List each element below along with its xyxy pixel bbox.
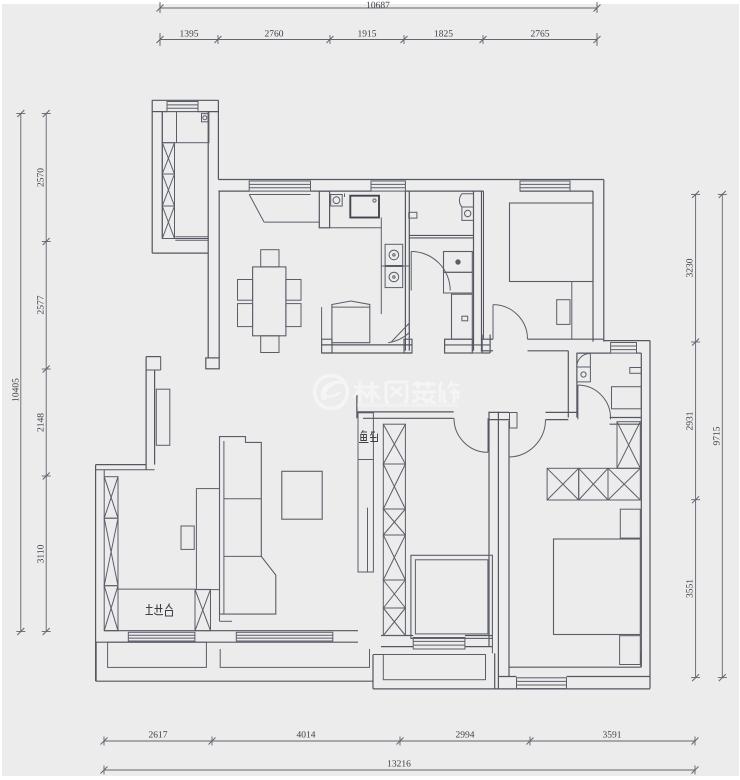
svg-text:2577: 2577 xyxy=(37,295,47,314)
svg-text:3551: 3551 xyxy=(686,579,696,598)
svg-text:10405: 10405 xyxy=(12,378,22,402)
svg-text:1825: 1825 xyxy=(434,30,453,40)
svg-text:3591: 3591 xyxy=(603,731,622,741)
svg-text:2765: 2765 xyxy=(531,30,550,40)
svg-text:3110: 3110 xyxy=(37,544,47,563)
svg-text:2760: 2760 xyxy=(265,30,284,40)
svg-text:1395: 1395 xyxy=(180,30,199,40)
svg-text:4014: 4014 xyxy=(297,731,316,741)
svg-text:10687: 10687 xyxy=(366,1,390,11)
svg-text:2570: 2570 xyxy=(37,168,47,187)
svg-text:2994: 2994 xyxy=(456,731,475,741)
svg-text:1915: 1915 xyxy=(358,30,377,40)
svg-text:3230: 3230 xyxy=(686,258,696,277)
svg-text:9715: 9715 xyxy=(713,426,723,445)
svg-text:2617: 2617 xyxy=(149,731,168,741)
svg-text:2931: 2931 xyxy=(686,411,696,430)
svg-text:13216: 13216 xyxy=(387,760,411,770)
svg-text:2148: 2148 xyxy=(37,413,47,432)
